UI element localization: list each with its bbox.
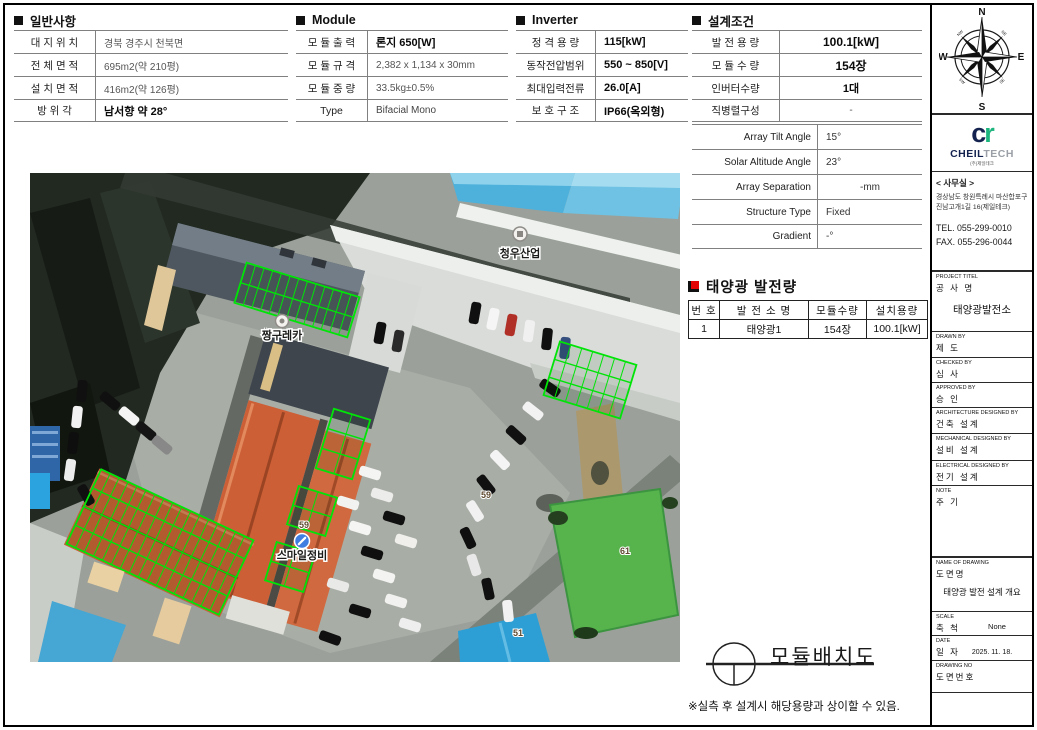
table-row: 발 전 용 량100.1[kW] [692, 30, 922, 53]
section-marker-icon [14, 16, 23, 25]
measurement-note: ※실측 후 설계시 해당용량과 상이할 수 있음. [688, 698, 900, 714]
office-address: 경상남도 창원특례시 마산합포구 진남고개1길 16(제일테크) [936, 193, 1028, 213]
map-label-cheongwoo: 청우산업 [500, 246, 540, 260]
design-conditions-table: 설계조건 발 전 용 량100.1[kW] 모 듈 수 량154장 인버터수량1… [692, 10, 922, 122]
cell-plant-name: 태양광1 [720, 320, 809, 339]
table-row: Solar Altitude Angle23° [692, 149, 922, 174]
date-cell: DATE 일 자 2025. 11. 18. [932, 636, 1032, 661]
row-label: 모 듈 수 량 [692, 54, 780, 76]
project-title-value: 태양광발전소 [932, 302, 1032, 317]
row-value: 26.0[A] [596, 77, 688, 99]
section-title: Module [312, 13, 356, 27]
row-label: Array Tilt Angle [692, 125, 818, 149]
compass-w: W [939, 52, 948, 63]
compass-e: E [1018, 52, 1025, 63]
module-table: Module 모 듈 출 력론지 650[W] 모 듈 규 격2,382 x 1… [296, 10, 508, 122]
generation-section-title: 태양광 발전량 [688, 276, 797, 297]
design-conditions-extended-table: Array Tilt Angle15° Solar Altitude Angle… [692, 124, 922, 249]
row-label: 보 호 구 조 [516, 100, 596, 121]
logo-letter-r: r [984, 118, 993, 148]
col-header: 발 전 소 명 [720, 301, 809, 320]
row-label: 대 지 위 치 [14, 31, 96, 53]
table-row: Gradient-° [692, 224, 922, 249]
cell-capacity: 100.1[kW] [867, 320, 928, 339]
mechanical-designer-cell: MECHANICAL DESIGNED BY 설비 설계 [932, 434, 1032, 461]
table-row: Array Tilt Angle15° [692, 124, 922, 149]
parcel-number: 59 [481, 490, 491, 500]
table-row: 전 체 면 적695m2(약 210평) [14, 53, 288, 76]
row-value: 론지 650[W] [368, 31, 508, 53]
row-value: -mm [818, 175, 922, 199]
parcel-number: 61 [620, 546, 630, 556]
col-header: 설치용량 [867, 301, 928, 320]
row-value: IP66(옥외형) [596, 100, 688, 121]
section-title: Inverter [532, 13, 578, 27]
table-row: Array Separation-mm [692, 174, 922, 199]
table-row: 모 듈 출 력론지 650[W] [296, 30, 508, 53]
row-value: 1대 [780, 77, 922, 99]
office-info-cell: < 사무실 > 경상남도 창원특례시 마산합포구 진남고개1길 16(제일테크)… [932, 172, 1032, 272]
design-header: 설계조건 [692, 10, 922, 30]
compass-nw: NW [956, 29, 964, 37]
row-value: 550 ~ 850[V] [596, 54, 688, 76]
inverter-table: Inverter 정 격 용 량115[kW] 동작전압범위550 ~ 850[… [516, 10, 688, 122]
table-row: 정 격 용 량115[kW] [516, 30, 688, 53]
general-info-header: 일반사항 [14, 10, 288, 30]
row-value: 115[kW] [596, 31, 688, 53]
compass-rose-icon: N S E W NE NW SE SW [939, 7, 1025, 111]
drawing-name-cell: NAME OF DRAWING 도면명 태양광 발전 설계 개요 [932, 558, 1032, 612]
row-label: 정 격 용 량 [516, 31, 596, 53]
company-logo-cell: cr CHEILTECH (주)제일테크 [932, 115, 1032, 172]
row-label: 인버터수량 [692, 77, 780, 99]
office-tel: TEL. 055-299-0010 [936, 222, 1028, 235]
red-square-icon [688, 281, 699, 292]
drawing-name-value: 태양광 발전 설계 개요 [932, 586, 1032, 598]
compass-n: N [978, 7, 985, 18]
row-value: 23° [818, 150, 922, 174]
row-label: Array Separation [692, 175, 818, 199]
company-logo-icon: cr [971, 120, 993, 147]
table-row: 대 지 위 치경북 경주시 천북면 [14, 30, 288, 53]
table-row: 설 치 면 적416m2(약 126평) [14, 76, 288, 99]
approved-by-cell: APPROVED BY 승 인 [932, 383, 1032, 408]
table-row: 보 호 구 조IP66(옥외형) [516, 99, 688, 122]
section-marker-icon [692, 16, 701, 25]
date-value: 2025. 11. 18. [952, 649, 1032, 656]
row-value: - [780, 100, 922, 121]
row-label: 최대입력전류 [516, 77, 596, 99]
section-title: 설계조건 [708, 11, 754, 30]
row-label: 동작전압범위 [516, 54, 596, 76]
row-label: 직병렬구성 [692, 100, 780, 121]
drawing-no-cell: DRAWING NO 도면번호 [932, 661, 1032, 693]
project-title-cell: PROJECT TITEL 공 사 명 태양광발전소 [932, 272, 1032, 332]
row-value: Fixed [818, 200, 922, 224]
office-contact: TEL. 055-299-0010 FAX. 055-296-0044 [936, 222, 1028, 248]
row-label: 발 전 용 량 [692, 31, 780, 53]
row-label: Structure Type [692, 200, 818, 224]
map-label-smile: 스마일정비 [277, 548, 328, 562]
company-name: CHEILTECH [950, 148, 1014, 160]
repair-shop-pin-icon [295, 534, 310, 549]
generation-table: 번 호 발 전 소 명 모듈수량 설치용량 1 태양광1 154장 100.1[… [688, 300, 928, 339]
drawing-title: 모듈배치도 [770, 641, 877, 671]
col-header: 번 호 [689, 301, 720, 320]
place-pin-icon [276, 315, 289, 328]
row-label: Type [296, 100, 368, 121]
row-label: 설 치 면 적 [14, 77, 96, 99]
row-value: 695m2(약 210평) [96, 54, 288, 76]
table-row: TypeBifacial Mono [296, 99, 508, 122]
title-block: N S E W NE NW SE SW cr CHEILTECH (주)제일테크… [930, 5, 1032, 725]
row-value: 33.5kg±0.5% [368, 77, 508, 99]
scale-value: None [962, 622, 1032, 631]
company-subtitle: (주)제일테크 [970, 161, 994, 167]
row-value: 경북 경주시 천북면 [96, 31, 288, 53]
row-value: 416m2(약 126평) [96, 77, 288, 99]
drawn-by-cell: DRAWN BY 제 도 [932, 332, 1032, 358]
general-info-table: 일반사항 대 지 위 치경북 경주시 천북면 전 체 면 적695m2(약 21… [14, 10, 288, 122]
cell-no: 1 [689, 320, 720, 339]
parcel-number: 59 [299, 520, 309, 530]
generation-header-row: 번 호 발 전 소 명 모듈수량 설치용량 [689, 301, 928, 320]
section-marker-icon [296, 16, 305, 25]
table-row: 동작전압범위550 ~ 850[V] [516, 53, 688, 76]
table-row: 인버터수량1대 [692, 76, 922, 99]
row-label: Solar Altitude Angle [692, 150, 818, 174]
row-value: 100.1[kW] [780, 31, 922, 53]
table-row: 모 듈 규 격2,382 x 1,134 x 30mm [296, 53, 508, 76]
table-row: 최대입력전류26.0[A] [516, 76, 688, 99]
table-row: 방 위 각남서향 약 28° [14, 99, 288, 122]
satellite-map: 청우산업 짱구레카 스마일정비 59 59 61 51 [30, 173, 680, 662]
row-label: Gradient [692, 225, 818, 248]
cell-module-count: 154장 [809, 320, 867, 339]
table-row: 모 듈 수 량154장 [692, 53, 922, 76]
checked-by-cell: CHECKED BY 심 사 [932, 358, 1032, 383]
office-heading: < 사무실 > [936, 177, 1028, 189]
row-value: Bifacial Mono [368, 100, 508, 121]
satellite-map-svg: 청우산업 짱구레카 스마일정비 59 59 61 51 [30, 173, 680, 662]
row-label: 방 위 각 [14, 100, 96, 121]
row-label: 전 체 면 적 [14, 54, 96, 76]
table-row: 모 듈 중 량33.5kg±0.5% [296, 76, 508, 99]
inverter-header: Inverter [516, 10, 688, 30]
row-value: 154장 [780, 54, 922, 76]
row-label: 모 듈 규 격 [296, 54, 368, 76]
col-header: 모듈수량 [809, 301, 867, 320]
table-row: 직병렬구성- [692, 99, 922, 122]
row-label: 모 듈 중 량 [296, 77, 368, 99]
generation-title-text: 태양광 발전량 [706, 276, 797, 297]
compass-cell: N S E W NE NW SE SW [932, 5, 1032, 115]
generation-data-row: 1 태양광1 154장 100.1[kW] [689, 320, 928, 339]
table-row: Structure TypeFixed [692, 199, 922, 224]
module-header: Module [296, 10, 508, 30]
map-label-jjanggu: 짱구레카 [262, 328, 302, 342]
logo-letter-c: c [971, 118, 984, 148]
row-value: -° [818, 225, 922, 248]
parcel-number: 51 [513, 628, 523, 638]
section-title: 일반사항 [30, 11, 76, 30]
blank-cell [932, 693, 1032, 725]
row-value: 2,382 x 1,134 x 30mm [368, 54, 508, 76]
scale-cell: SCALE 축 척 None [932, 612, 1032, 636]
office-fax: FAX. 055-296-0044 [936, 236, 1028, 249]
architecture-designer-cell: ARCHITECTURE DESIGNED BY 건축 설계 [932, 408, 1032, 434]
compass-ne: NE [1000, 29, 1008, 37]
row-value: 15° [818, 125, 922, 149]
section-marker-icon [516, 16, 525, 25]
note-cell: NOTE 주 기 [932, 486, 1032, 558]
row-label: 모 듈 출 력 [296, 31, 368, 53]
electrical-designer-cell: ELECTRICAL DESIGNED BY 전기 설계 [932, 461, 1032, 486]
row-value: 남서향 약 28° [96, 100, 288, 121]
compass-s: S [979, 102, 986, 111]
building-pin-icon [513, 227, 527, 241]
